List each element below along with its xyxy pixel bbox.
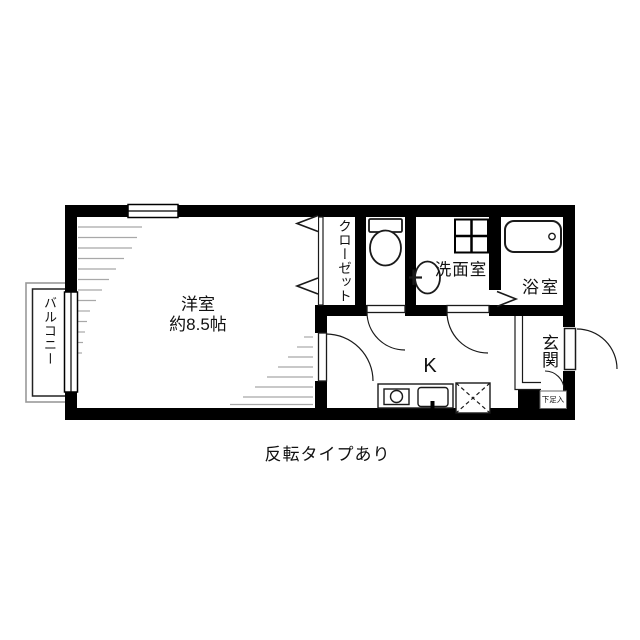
main-room-label: 洋室 約8.5帖 xyxy=(128,295,268,334)
door-toilet xyxy=(367,306,405,351)
top-window xyxy=(128,205,178,218)
closet-folding-door xyxy=(297,216,323,306)
entrance-door xyxy=(562,327,617,371)
balcony-window xyxy=(65,292,78,392)
main-room-name: 洋室 xyxy=(128,295,268,315)
floor-plan: 洋室 約8.5帖 バルコニー クローゼット 洗面室 浴室 K 玄関 下足入 反転… xyxy=(0,0,640,640)
floor-plan-drawing xyxy=(0,0,640,640)
shoe-cabinet-door-arc xyxy=(545,371,564,390)
main-room-size: 約8.5帖 xyxy=(128,315,268,335)
balcony-label: バルコニー xyxy=(40,296,59,366)
shoe-cabinet-label: 下足入 xyxy=(539,394,567,405)
bathroom-label: 浴室 xyxy=(509,273,573,298)
entrance-label: 玄関 xyxy=(536,334,561,368)
hatch-lines-bottom-right xyxy=(230,337,313,405)
kitchen-label: K xyxy=(410,355,450,378)
washing-machine-pan-icon xyxy=(455,220,488,253)
hatch-lines-top-left xyxy=(78,227,142,353)
refrigerator-space-icon xyxy=(456,383,490,413)
stove-icon xyxy=(384,389,409,405)
kitchen-counter xyxy=(378,384,453,413)
door-main-to-kitchen xyxy=(319,333,374,381)
washroom-label: 洗面室 xyxy=(429,256,493,280)
bathtub-icon xyxy=(505,221,561,252)
closet-label: クローゼット xyxy=(333,219,353,303)
plan-caption: 反転タイプあり xyxy=(230,440,425,465)
toilet-icon xyxy=(369,219,402,266)
door-washroom xyxy=(447,306,489,354)
